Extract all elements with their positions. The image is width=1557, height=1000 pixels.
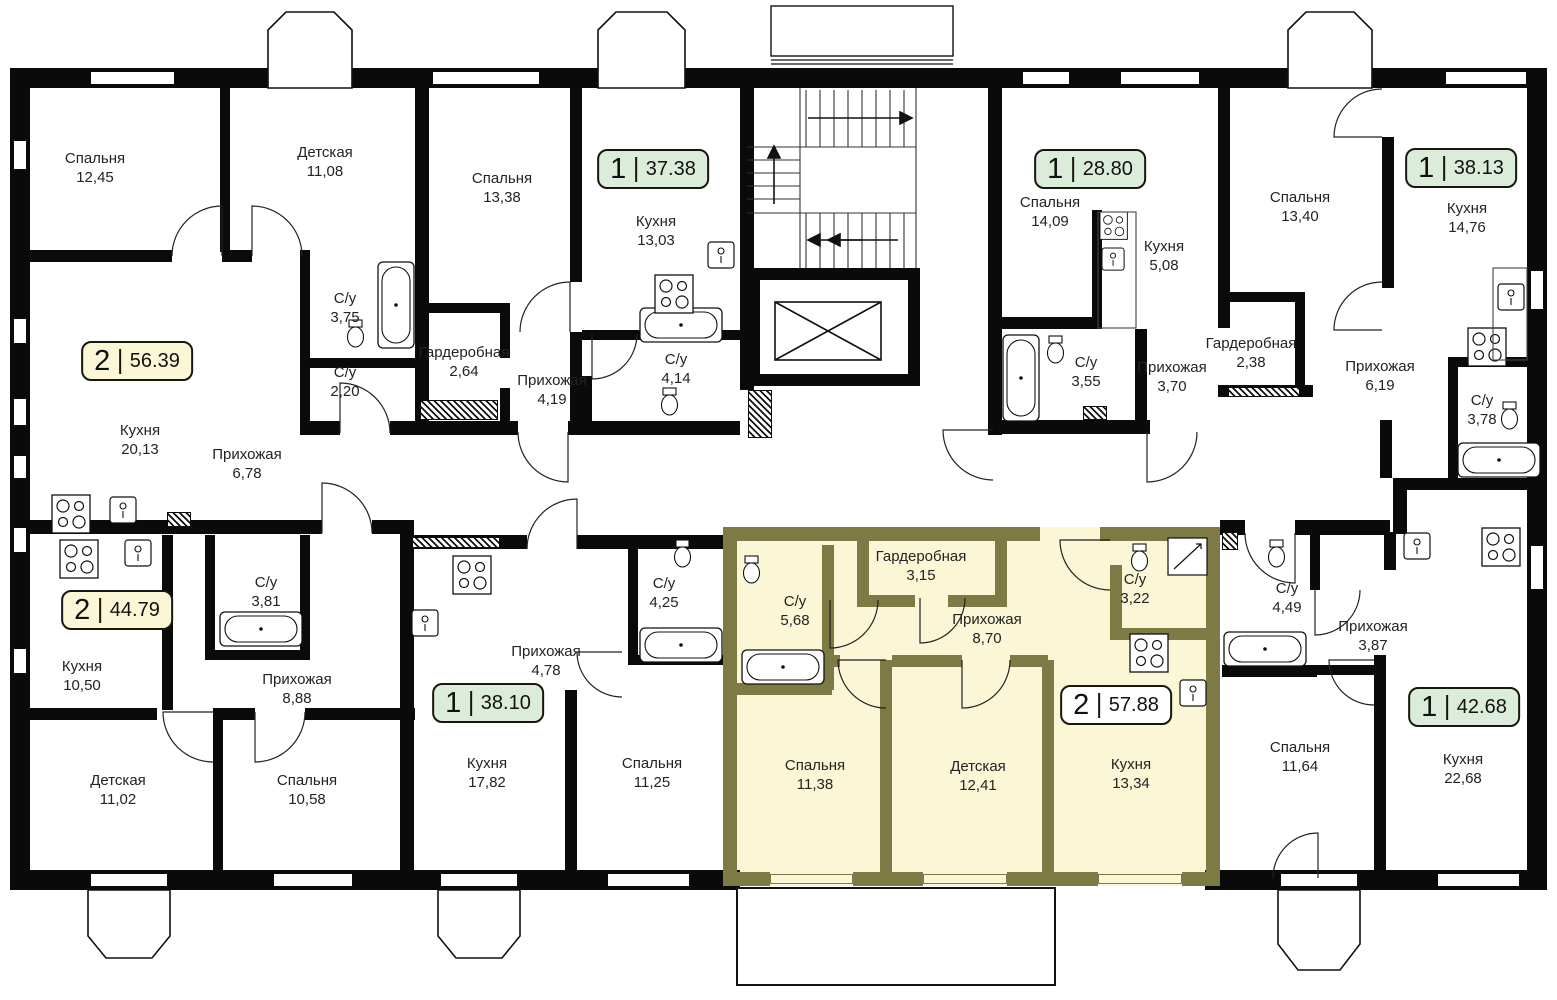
room-label: Прихожая6,19: [1345, 357, 1415, 395]
room-name: Прихожая: [1137, 358, 1207, 377]
room-label: Прихожая4,19: [517, 371, 587, 409]
badge-divider: [635, 157, 637, 182]
room-area: 3,55: [1071, 372, 1100, 391]
room-name: Кухня: [636, 212, 676, 231]
room-area: 12,45: [65, 168, 125, 187]
room-label: Кухня17,82: [467, 754, 507, 792]
room-area: 3,87: [1338, 636, 1408, 655]
room-name: Кухня: [1144, 237, 1184, 256]
room-area: 3,81: [251, 592, 280, 611]
apartment-badge[interactable]: 138.13: [1405, 148, 1517, 188]
badge-room-count: 2: [1073, 689, 1089, 722]
room-area: 4,14: [661, 369, 690, 388]
room-area: 13,03: [636, 231, 676, 250]
apartment-badge[interactable]: 128.80: [1034, 149, 1146, 189]
room-name: С/у: [1272, 579, 1301, 598]
room-area: 13,40: [1270, 207, 1330, 226]
room-area: 6,19: [1345, 376, 1415, 395]
room-area: 11,08: [297, 162, 353, 181]
room-name: Гардеробная: [876, 547, 967, 566]
room-name: Прихожая: [517, 371, 587, 390]
apartment-badge[interactable]: 256.39: [81, 341, 193, 381]
room-name: С/у: [661, 350, 690, 369]
room-name: Прихожая: [212, 445, 282, 464]
toilet-icons: [348, 320, 1518, 583]
balcony-outline: [737, 888, 1055, 985]
room-area: 11,25: [622, 773, 682, 792]
badge-area: 56.39: [130, 350, 180, 373]
room-name: Кухня: [467, 754, 507, 773]
room-label: С/у3,75: [330, 289, 359, 327]
room-name: Детская: [297, 143, 353, 162]
room-label: Кухня10,50: [62, 657, 102, 695]
badge-area: 28.80: [1083, 158, 1133, 181]
room-name: С/у: [1120, 570, 1149, 589]
room-area: 8,70: [952, 629, 1022, 648]
badge-room-count: 1: [1421, 691, 1437, 724]
room-label: Прихожая3,70: [1137, 358, 1207, 396]
room-label: С/у4,14: [661, 350, 690, 388]
room-label: Детская11,08: [297, 143, 353, 181]
badge-divider: [470, 691, 472, 716]
room-label: Спальня13,38: [472, 169, 532, 207]
room-label: Прихожая6,78: [212, 445, 282, 483]
badge-area: 44.79: [110, 599, 160, 622]
apartment-badge[interactable]: 137.38: [597, 149, 709, 189]
floor-plan: Спальня12,45 Детская11,08 С/у3,75 С/у2,2…: [0, 0, 1557, 1000]
room-area: 4,78: [511, 661, 581, 680]
room-area: 8,88: [262, 689, 332, 708]
room-area: 3,22: [1120, 589, 1149, 608]
room-name: Гардеробная: [1206, 334, 1297, 353]
room-label: С/у3,55: [1071, 353, 1100, 391]
room-label: Кухня5,08: [1144, 237, 1184, 275]
room-label: Прихожая8,88: [262, 670, 332, 708]
room-label: С/у4,25: [649, 574, 678, 612]
room-name: Спальня: [65, 149, 125, 168]
room-area: 11,02: [90, 790, 146, 809]
room-label: Прихожая3,87: [1338, 617, 1408, 655]
room-area: 2,20: [330, 382, 359, 401]
room-area: 17,82: [467, 773, 507, 792]
room-label: Детская12,41: [950, 757, 1006, 795]
room-name: Прихожая: [1338, 617, 1408, 636]
room-area: 4,19: [517, 390, 587, 409]
room-name: С/у: [330, 363, 359, 382]
room-label: Кухня14,76: [1447, 199, 1487, 237]
badge-room-count: 1: [445, 687, 461, 720]
room-label: Кухня13,34: [1111, 755, 1151, 793]
room-label: Спальня12,45: [65, 149, 125, 187]
apartment-badge[interactable]: 138.10: [432, 683, 544, 723]
room-name: Кухня: [1447, 199, 1487, 218]
room-name: Гардеробная: [419, 343, 510, 362]
badge-room-count: 1: [1418, 152, 1434, 185]
room-name: Прихожая: [511, 642, 581, 661]
room-area: 13,38: [472, 188, 532, 207]
bay-windows: [88, 12, 1372, 970]
badge-area: 42.68: [1457, 696, 1507, 719]
room-name: Детская: [90, 771, 146, 790]
room-area: 20,13: [120, 440, 160, 459]
badge-room-count: 1: [1047, 153, 1063, 186]
room-area: 14,76: [1447, 218, 1487, 237]
room-name: Детская: [950, 757, 1006, 776]
room-label: Спальня10,58: [277, 771, 337, 809]
apartment-badge-highlighted[interactable]: 257.88: [1060, 685, 1172, 725]
room-area: 2,64: [419, 362, 510, 381]
room-area: 5,08: [1144, 256, 1184, 275]
badge-divider: [1443, 156, 1445, 181]
room-label: Гардеробная2,38: [1206, 334, 1297, 372]
room-name: Прихожая: [262, 670, 332, 689]
room-area: 11,64: [1270, 757, 1330, 776]
badge-divider: [99, 598, 101, 623]
room-area: 12,41: [950, 776, 1006, 795]
room-label: С/у3,78: [1467, 391, 1496, 429]
room-label: Кухня20,13: [120, 421, 160, 459]
badge-room-count: 2: [94, 345, 110, 378]
room-name: Кухня: [62, 657, 102, 676]
room-area: 3,70: [1137, 377, 1207, 396]
badge-divider: [1446, 695, 1448, 720]
staircase[interactable]: [747, 88, 916, 268]
room-name: С/у: [1071, 353, 1100, 372]
room-name: Спальня: [1270, 188, 1330, 207]
badge-divider: [1072, 157, 1074, 182]
room-name: Спальня: [1270, 738, 1330, 757]
room-label: Кухня13,03: [636, 212, 676, 250]
room-area: 10,50: [62, 676, 102, 695]
room-label: С/у3,81: [251, 573, 280, 611]
room-label: Гардеробная3,15: [876, 547, 967, 585]
room-label: Прихожая4,78: [511, 642, 581, 680]
room-area: 4,25: [649, 593, 678, 612]
room-label: С/у4,49: [1272, 579, 1301, 617]
room-label: Кухня22,68: [1443, 750, 1483, 788]
badge-area: 38.10: [481, 692, 531, 715]
room-label: Спальня13,40: [1270, 188, 1330, 226]
room-name: Спальня: [1020, 193, 1080, 212]
room-area: 5,68: [780, 611, 809, 630]
room-name: Спальня: [785, 756, 845, 775]
room-area: 11,38: [785, 775, 845, 794]
room-name: С/у: [780, 592, 809, 611]
room-area: 13,34: [1111, 774, 1151, 793]
badge-area: 37.38: [646, 158, 696, 181]
room-name: Кухня: [120, 421, 160, 440]
room-label: Спальня11,25: [622, 754, 682, 792]
badge-area: 38.13: [1454, 157, 1504, 180]
room-name: Спальня: [472, 169, 532, 188]
room-name: С/у: [1467, 391, 1496, 410]
badge-divider: [1098, 693, 1100, 718]
door-arcs: [163, 89, 1382, 878]
room-name: Кухня: [1111, 755, 1151, 774]
room-name: Спальня: [622, 754, 682, 773]
room-label: С/у5,68: [780, 592, 809, 630]
apartment-badge[interactable]: 142.68: [1408, 687, 1520, 727]
room-area: 3,15: [876, 566, 967, 585]
room-name: С/у: [251, 573, 280, 592]
room-label: Спальня11,64: [1270, 738, 1330, 776]
room-label: Детская11,02: [90, 771, 146, 809]
room-name: Прихожая: [1345, 357, 1415, 376]
entrance-canopy: [771, 6, 953, 64]
room-name: С/у: [649, 574, 678, 593]
room-label: Прихожая8,70: [952, 610, 1022, 648]
room-area: 2,38: [1206, 353, 1297, 372]
badge-area: 57.88: [1109, 694, 1159, 717]
badge-divider: [119, 349, 121, 374]
shower-icon: [1168, 538, 1207, 575]
badge-room-count: 2: [74, 594, 90, 627]
elevator[interactable]: [775, 302, 881, 360]
room-label: Гардеробная2,64: [419, 343, 510, 381]
room-name: Кухня: [1443, 750, 1483, 769]
room-name: Прихожая: [952, 610, 1022, 629]
room-area: 4,49: [1272, 598, 1301, 617]
room-label: С/у2,20: [330, 363, 359, 401]
room-label: С/у3,22: [1120, 570, 1149, 608]
thin-line-layer: [0, 0, 1557, 1000]
badge-room-count: 1: [610, 153, 626, 186]
room-name: Спальня: [277, 771, 337, 790]
room-name: С/у: [330, 289, 359, 308]
room-area: 14,09: [1020, 212, 1080, 231]
room-area: 10,58: [277, 790, 337, 809]
room-area: 22,68: [1443, 769, 1483, 788]
room-area: 3,78: [1467, 410, 1496, 429]
apartment-badge[interactable]: 244.79: [61, 590, 173, 630]
room-label: Спальня11,38: [785, 756, 845, 794]
room-area: 6,78: [212, 464, 282, 483]
room-area: 3,75: [330, 308, 359, 327]
room-label: Спальня14,09: [1020, 193, 1080, 231]
